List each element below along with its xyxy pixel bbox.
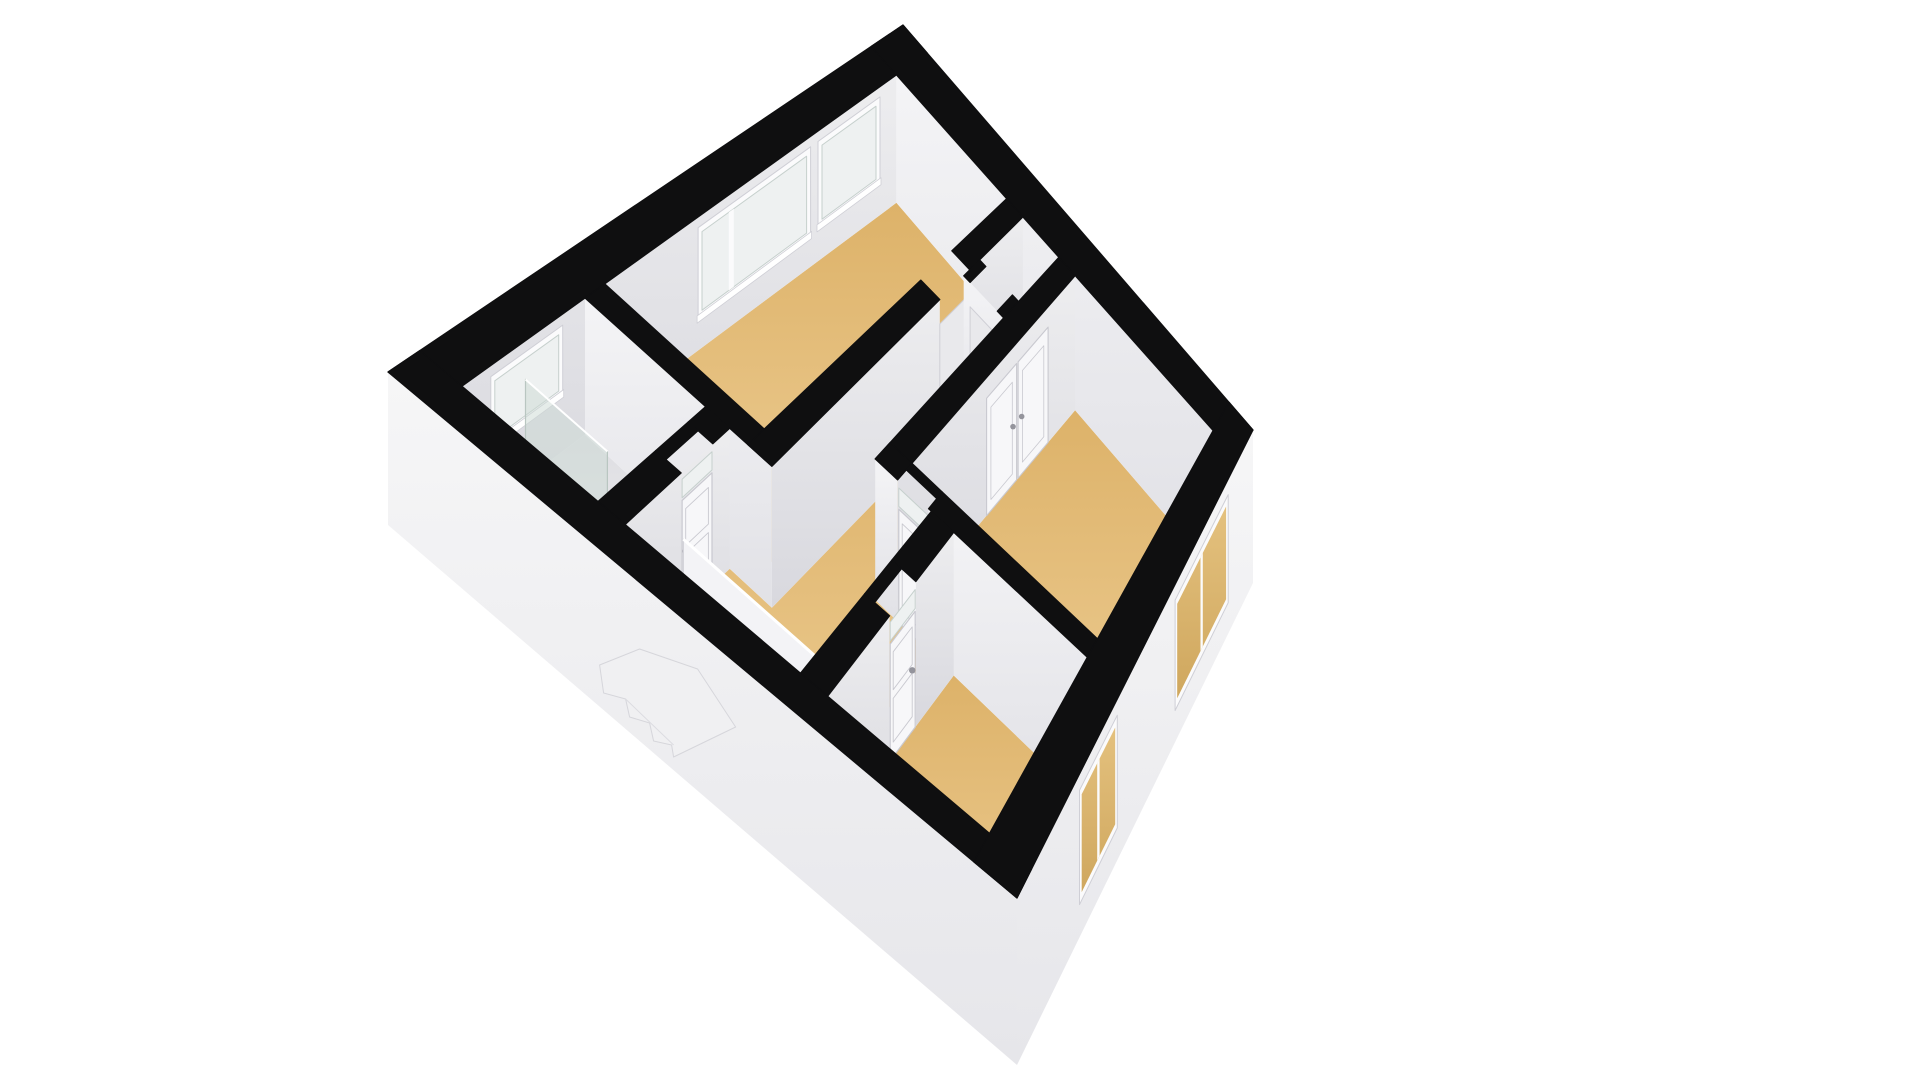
- floorplan-3d-canvas: [0, 0, 1920, 1080]
- closet-doors-bedroom-right-handle: [1019, 414, 1025, 420]
- window-ext-bedroom-right-mullion: [1201, 553, 1203, 651]
- floor-plan-render: [0, 0, 1920, 1080]
- window-bedroom-top-large-mullion: [729, 209, 734, 291]
- door-bedroom-bottom-handle: [909, 667, 915, 673]
- window-ext-bedroom-bottom-mullion: [1097, 759, 1099, 861]
- closet-doors-bedroom-right-handle: [1010, 424, 1016, 430]
